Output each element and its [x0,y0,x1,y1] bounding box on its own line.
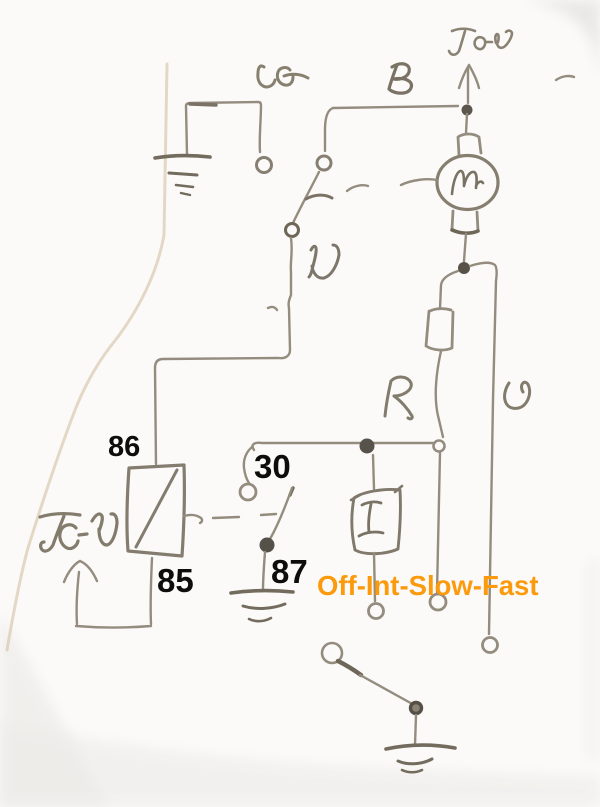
svg-text:87: 87 [271,553,308,590]
svg-text:85: 85 [157,562,194,599]
svg-text:86: 86 [108,431,140,463]
svg-text:30: 30 [254,448,291,485]
svg-text:Off-Int-Slow-Fast: Off-Int-Slow-Fast [317,570,539,601]
